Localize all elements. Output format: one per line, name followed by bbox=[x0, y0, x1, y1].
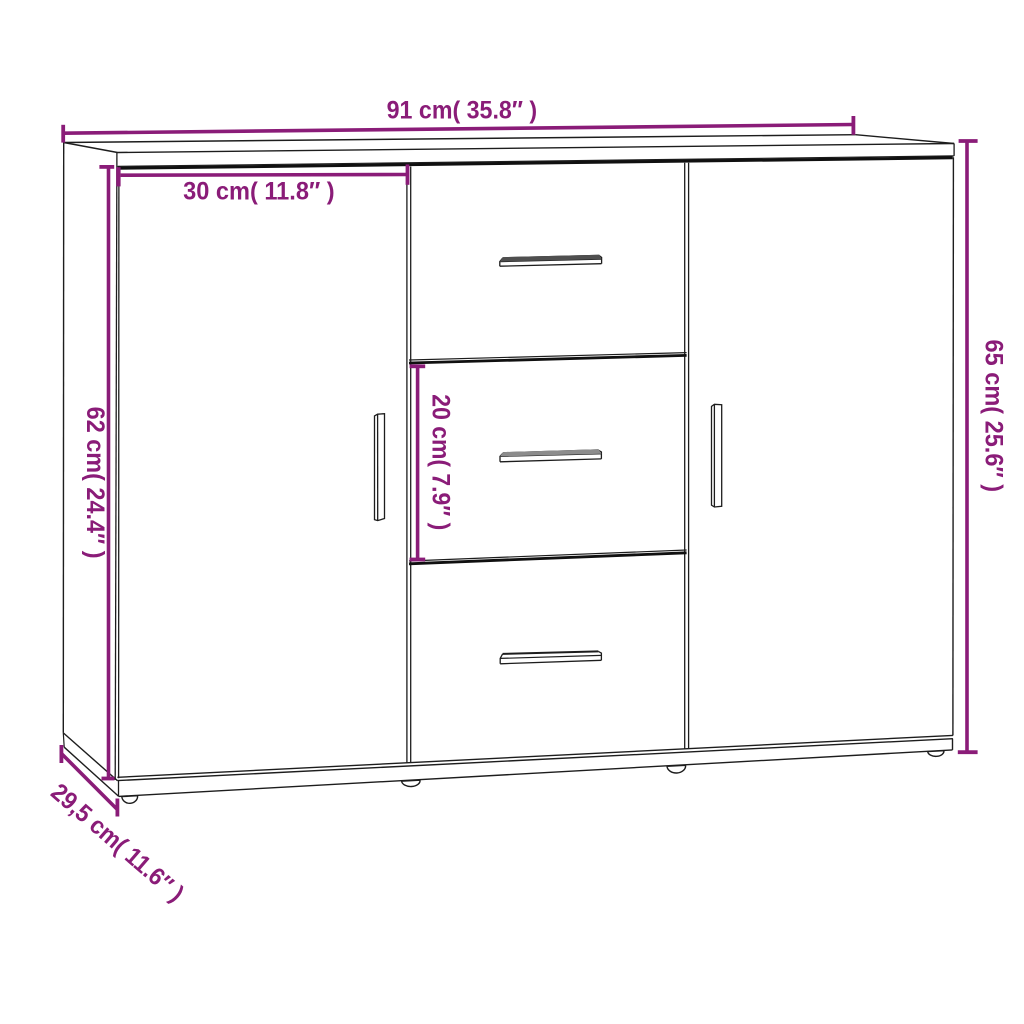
svg-text:62 cm( 24.4″ ): 62 cm( 24.4″ ) bbox=[81, 407, 108, 559]
svg-text:30 cm( 11.8″ ): 30 cm( 11.8″ ) bbox=[183, 179, 335, 206]
svg-text:65 cm( 25.6″ ): 65 cm( 25.6″ ) bbox=[980, 340, 1007, 493]
svg-text:91 cm( 35.8″ ): 91 cm( 35.8″ ) bbox=[387, 97, 538, 124]
svg-text:20 cm( 7.9″ ): 20 cm( 7.9″ ) bbox=[426, 394, 453, 530]
